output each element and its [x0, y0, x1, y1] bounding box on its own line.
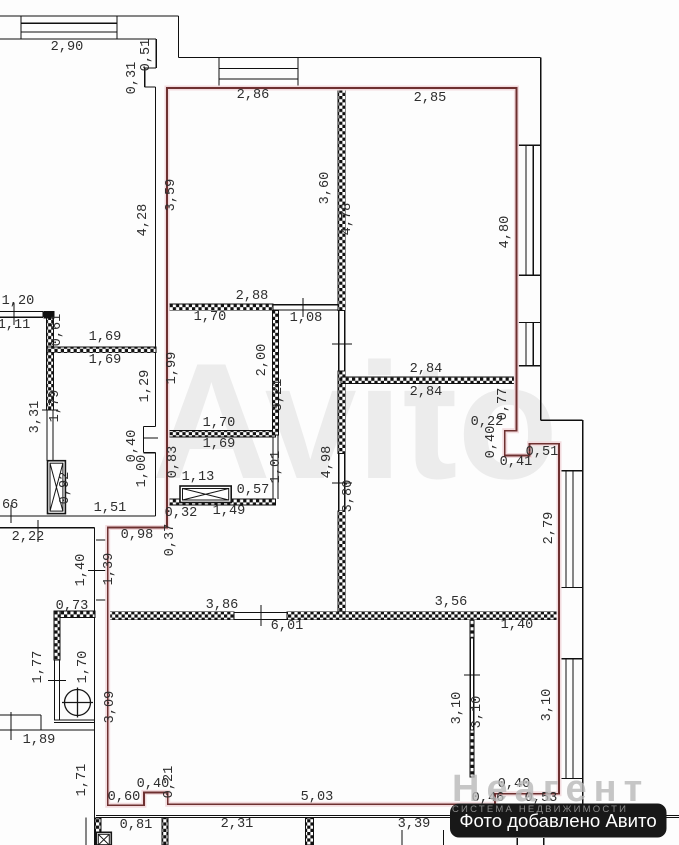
svg-text:1,71: 1,71	[75, 764, 90, 797]
svg-text:1,49: 1,49	[213, 504, 246, 519]
svg-text:0,40: 0,40	[484, 426, 499, 459]
svg-text:2,84: 2,84	[410, 385, 443, 400]
svg-text:1,29: 1,29	[138, 370, 153, 403]
svg-text:3,80: 3,80	[341, 480, 356, 513]
svg-text:2,00: 2,00	[255, 344, 270, 377]
svg-text:2,84: 2,84	[410, 362, 443, 377]
svg-text:0,98: 0,98	[121, 528, 154, 543]
svg-text:0,37: 0,37	[163, 524, 178, 557]
svg-text:2,86: 2,86	[237, 88, 270, 103]
svg-text:1,69: 1,69	[89, 353, 122, 368]
svg-text:1,99: 1,99	[165, 352, 180, 385]
svg-text:3,56: 3,56	[435, 595, 468, 610]
svg-text:1,70: 1,70	[203, 416, 236, 431]
svg-text:2,31: 2,31	[221, 817, 254, 832]
svg-text:2,85: 2,85	[414, 91, 447, 106]
svg-text:0,60: 0,60	[108, 790, 141, 805]
svg-text:0,51: 0,51	[526, 445, 559, 460]
svg-text:4,80: 4,80	[498, 216, 513, 249]
svg-text:2,79: 2,79	[542, 512, 557, 545]
svg-text:3,60: 3,60	[318, 172, 333, 205]
svg-text:0,57: 0,57	[237, 483, 270, 498]
svg-text:1,77: 1,77	[31, 651, 46, 684]
svg-text:1,40: 1,40	[74, 554, 89, 587]
svg-text:1,40: 1,40	[501, 618, 534, 633]
svg-text:СИСТЕМА НЕДВИЖИМОСТИ: СИСТЕМА НЕДВИЖИМОСТИ	[452, 804, 628, 815]
svg-text:6,01: 6,01	[271, 619, 304, 634]
svg-text:2,22: 2,22	[12, 530, 45, 545]
svg-text:3,09: 3,09	[103, 691, 118, 724]
svg-text:3,31: 3,31	[28, 401, 43, 434]
svg-text:1,39: 1,39	[102, 553, 117, 586]
svg-text:0,61: 0,61	[50, 314, 65, 347]
svg-text:2,88: 2,88	[236, 289, 269, 304]
svg-text:0,77: 0,77	[496, 388, 511, 421]
svg-text:1,79: 1,79	[48, 390, 63, 423]
svg-text:0,51: 0,51	[139, 39, 154, 72]
svg-text:0,83: 0,83	[166, 446, 181, 479]
svg-text:2,90: 2,90	[51, 40, 84, 55]
svg-text:1,20: 1,20	[2, 294, 35, 309]
svg-text:4,78: 4,78	[340, 203, 355, 236]
svg-text:1,13: 1,13	[182, 470, 215, 485]
svg-text:0,66: 0,66	[0, 498, 18, 513]
svg-text:0,73: 0,73	[56, 599, 89, 614]
svg-text:4,98: 4,98	[320, 446, 335, 479]
svg-text:3,21: 3,21	[271, 379, 286, 412]
svg-text:1,69: 1,69	[203, 437, 236, 452]
svg-text:1,01: 1,01	[269, 451, 284, 484]
svg-text:3,59: 3,59	[164, 179, 179, 212]
svg-text:0,92: 0,92	[58, 472, 73, 505]
svg-text:0,31: 0,31	[125, 62, 140, 95]
svg-text:3,10: 3,10	[540, 689, 555, 722]
svg-text:0,21: 0,21	[162, 766, 177, 799]
svg-text:3,10: 3,10	[470, 696, 485, 729]
svg-text:1,11: 1,11	[0, 318, 30, 333]
svg-text:1,89: 1,89	[23, 733, 56, 748]
svg-text:3,10: 3,10	[450, 692, 465, 725]
svg-text:1,08: 1,08	[290, 311, 323, 326]
svg-text:1,70: 1,70	[194, 310, 227, 325]
svg-text:1,69: 1,69	[89, 330, 122, 345]
svg-text:3,39: 3,39	[398, 817, 431, 832]
svg-text:3,86: 3,86	[206, 598, 239, 613]
svg-text:0,81: 0,81	[120, 818, 153, 833]
svg-text:1,51: 1,51	[94, 501, 127, 516]
svg-text:4,28: 4,28	[136, 204, 151, 237]
svg-text:0,32: 0,32	[165, 506, 198, 521]
svg-text:1,70: 1,70	[76, 651, 91, 684]
svg-text:5,03: 5,03	[301, 790, 334, 805]
svg-text:1,00: 1,00	[135, 455, 150, 488]
